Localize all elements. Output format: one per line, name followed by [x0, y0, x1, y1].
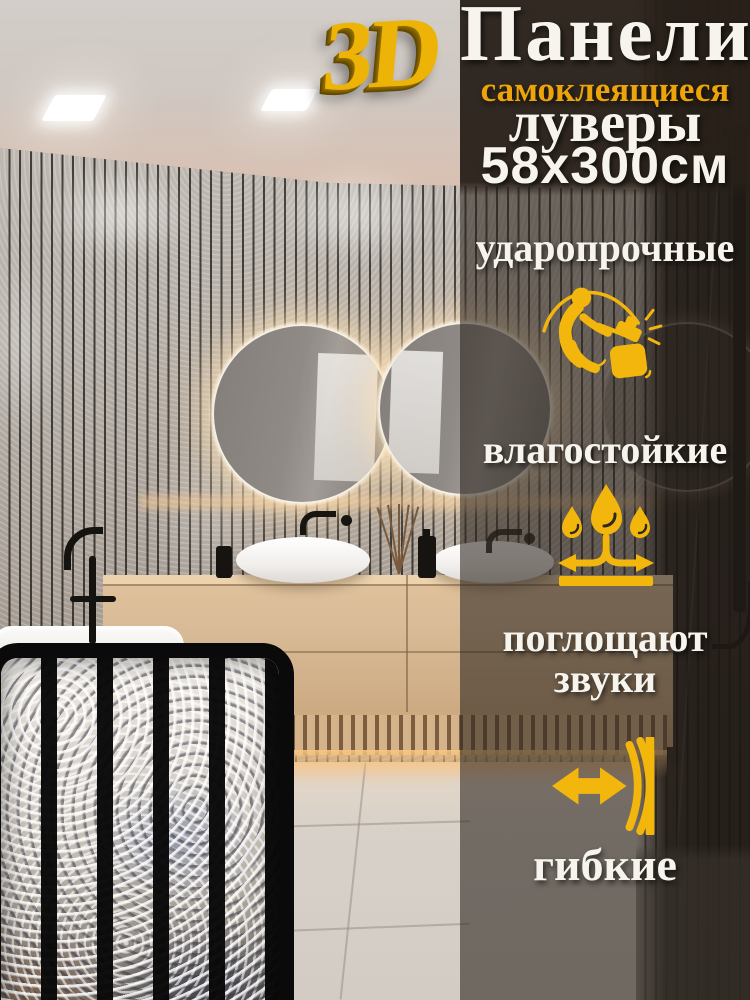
feature-line: поглощают — [502, 615, 707, 660]
feature-flexible: гибкие — [460, 842, 750, 889]
mirror-reflection — [388, 350, 443, 474]
feature-line: звуки — [554, 656, 656, 701]
feature-impact-resistant: ударопрочные — [460, 228, 750, 269]
faucet-handle — [341, 515, 352, 526]
hammer-impact-icon — [536, 270, 664, 383]
soap-dispenser — [216, 546, 232, 578]
vessel-sink — [236, 537, 370, 583]
round-mirror — [212, 324, 392, 504]
product-banner: 3D Панели самоклеящиеся луверы 58х300см … — [0, 0, 750, 1000]
soap-dispenser — [418, 536, 436, 578]
banner-title: Панели — [460, 0, 750, 74]
mirror-reflection — [314, 353, 378, 482]
panel-size: 58х300см — [460, 140, 750, 192]
wall-faucet — [300, 511, 336, 535]
bend-flex-icon — [549, 737, 655, 835]
wall-sheen — [278, 166, 433, 262]
tub-faucet — [70, 596, 116, 602]
logo-3d: 3D — [291, 0, 471, 108]
wall-sheen — [48, 168, 193, 260]
feature-sound-absorbing: поглощают звуки — [460, 618, 750, 700]
panel-texture — [1, 658, 279, 1000]
panel-closeup-inset — [0, 643, 294, 1000]
feature-moisture-resistant: влагостойкие — [460, 430, 750, 471]
water-drops-icon — [551, 480, 661, 586]
decor-twigs — [386, 500, 412, 574]
wall-sheen — [0, 250, 56, 440]
